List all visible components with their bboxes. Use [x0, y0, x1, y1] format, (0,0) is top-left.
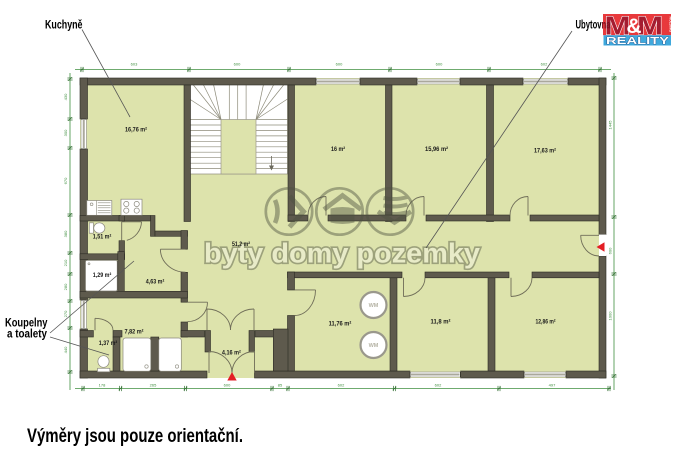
svg-text:497: 497: [549, 383, 556, 388]
svg-text:1000: 1000: [608, 311, 613, 321]
svg-text:byty domy pozemky: byty domy pozemky: [204, 238, 481, 269]
svg-text:12,86 m²: 12,86 m²: [536, 319, 556, 326]
svg-text:178: 178: [99, 383, 106, 388]
svg-text:a toalety: a toalety: [7, 329, 48, 341]
svg-text:600: 600: [608, 247, 613, 254]
svg-text:440: 440: [63, 346, 68, 353]
svg-text:600: 600: [436, 62, 443, 67]
svg-text:602: 602: [541, 62, 548, 67]
svg-text:670: 670: [63, 177, 68, 184]
svg-text:380: 380: [63, 230, 68, 237]
svg-text:17,63 m²: 17,63 m²: [534, 148, 556, 155]
svg-text:1,37 m²: 1,37 m²: [99, 340, 117, 347]
svg-text:602: 602: [338, 383, 345, 388]
svg-text:300: 300: [63, 129, 68, 136]
svg-text:WM: WM: [369, 303, 379, 309]
svg-text:280: 280: [63, 283, 68, 290]
svg-text:600: 600: [234, 62, 241, 67]
svg-text:85: 85: [278, 383, 283, 388]
svg-text:&: &: [626, 15, 641, 38]
svg-text:4,16 m²: 4,16 m²: [222, 350, 241, 357]
svg-text:Kuchyně: Kuchyně: [45, 18, 83, 32]
svg-text:1,51 m²: 1,51 m²: [93, 234, 112, 241]
svg-text:REALITY: REALITY: [606, 36, 670, 47]
svg-text:Výměry jsou pouze orientační.: Výměry jsou pouze orientační.: [27, 426, 243, 447]
svg-text:Ubytovna: Ubytovna: [576, 18, 611, 32]
svg-text:4,63 m²: 4,63 m²: [146, 279, 165, 286]
svg-text:16,76 m²: 16,76 m²: [125, 127, 147, 134]
svg-text:265: 265: [150, 383, 157, 388]
svg-text:600: 600: [336, 62, 343, 67]
svg-text:600: 600: [224, 383, 231, 388]
svg-text:15,96 m²: 15,96 m²: [425, 146, 448, 153]
svg-text:WM: WM: [369, 343, 379, 349]
svg-text:270: 270: [63, 310, 68, 317]
svg-text:7,82 m²: 7,82 m²: [125, 329, 144, 336]
svg-text:1445: 1445: [608, 120, 613, 130]
svg-text:HOLDING: HOLDING: [669, 17, 673, 33]
svg-text:603: 603: [131, 62, 138, 67]
svg-text:16 m²: 16 m²: [331, 146, 345, 153]
svg-text:11,76 m²: 11,76 m²: [329, 321, 352, 328]
svg-text:11,8 m²: 11,8 m²: [431, 319, 451, 326]
svg-text:1,29 m²: 1,29 m²: [93, 272, 112, 279]
svg-text:602: 602: [435, 383, 442, 388]
svg-text:430: 430: [63, 93, 68, 100]
svg-text:210: 210: [63, 259, 68, 266]
